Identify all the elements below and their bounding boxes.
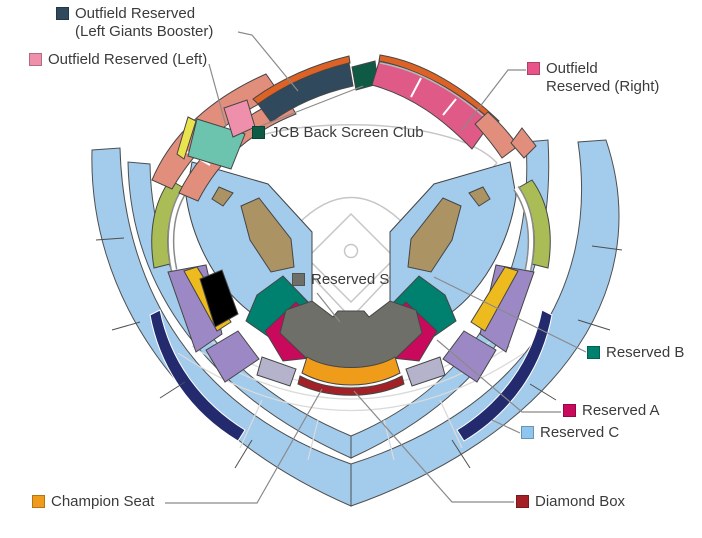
legend-reserved-a-label: Reserved A	[582, 402, 660, 420]
legend-champion-label: Champion Seat	[51, 493, 154, 511]
legend-outfield-right-label: Outfield Reserved (Right)	[546, 60, 659, 96]
legend-reserved-s-swatch	[292, 273, 305, 286]
legend-outfield-right-swatch	[527, 62, 540, 75]
stadium-seat-map: Outfield Reserved (Left Giants Booster) …	[0, 0, 702, 538]
legend-outfield-right: Outfield Reserved (Right)	[527, 60, 659, 96]
legend-booster: Outfield Reserved (Left Giants Booster)	[56, 5, 213, 41]
legend-reserved-b-swatch	[587, 346, 600, 359]
legend-diamond-box: Diamond Box	[516, 493, 625, 511]
legend-champion-swatch	[32, 495, 45, 508]
legend-outfield-left-label: Outfield Reserved (Left)	[48, 51, 207, 69]
legend-outfield-left-swatch	[29, 53, 42, 66]
infield-arc	[297, 198, 405, 226]
legend-reserved-s-label: Reserved S	[311, 271, 389, 289]
legend-outfield-left: Outfield Reserved (Left)	[29, 51, 207, 69]
ring-divider	[160, 382, 185, 398]
legend-diamond-box-label: Diamond Box	[535, 493, 625, 511]
legend-jcb: JCB Back Screen Club	[252, 124, 424, 142]
legend-diamond-box-swatch	[516, 495, 529, 508]
pitcher-mound	[345, 245, 358, 258]
legend-champion: Champion Seat	[32, 493, 154, 511]
legend-reserved-c-label: Reserved C	[540, 424, 619, 442]
legend-reserved-b: Reserved B	[587, 344, 684, 362]
legend-reserved-c: Reserved C	[521, 424, 619, 442]
legend-jcb-label: JCB Back Screen Club	[271, 124, 424, 142]
section-reserved-s[interactable]	[280, 301, 422, 373]
section-lavender-left[interactable]	[257, 357, 296, 386]
legend-reserved-c-swatch	[521, 426, 534, 439]
legend-booster-label: Outfield Reserved (Left Giants Booster)	[75, 5, 213, 41]
legend-reserved-s: Reserved S	[292, 271, 389, 289]
legend-reserved-a-swatch	[563, 404, 576, 417]
legend-reserved-b-label: Reserved B	[606, 344, 684, 362]
legend-reserved-a: Reserved A	[563, 402, 660, 420]
ring-divider	[112, 322, 140, 330]
legend-booster-swatch	[56, 7, 69, 20]
legend-jcb-swatch	[252, 126, 265, 139]
